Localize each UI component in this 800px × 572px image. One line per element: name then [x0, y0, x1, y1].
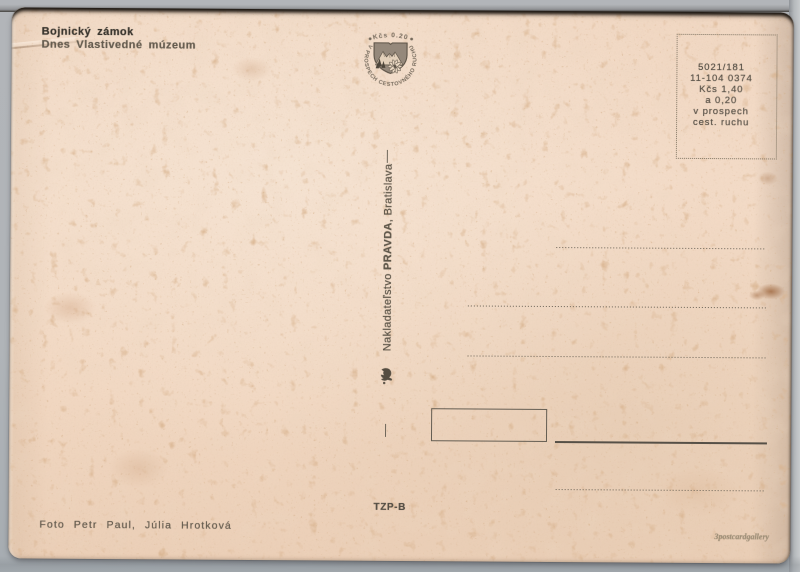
svg-text:Kčs 0.20: Kčs 0.20	[371, 32, 408, 42]
